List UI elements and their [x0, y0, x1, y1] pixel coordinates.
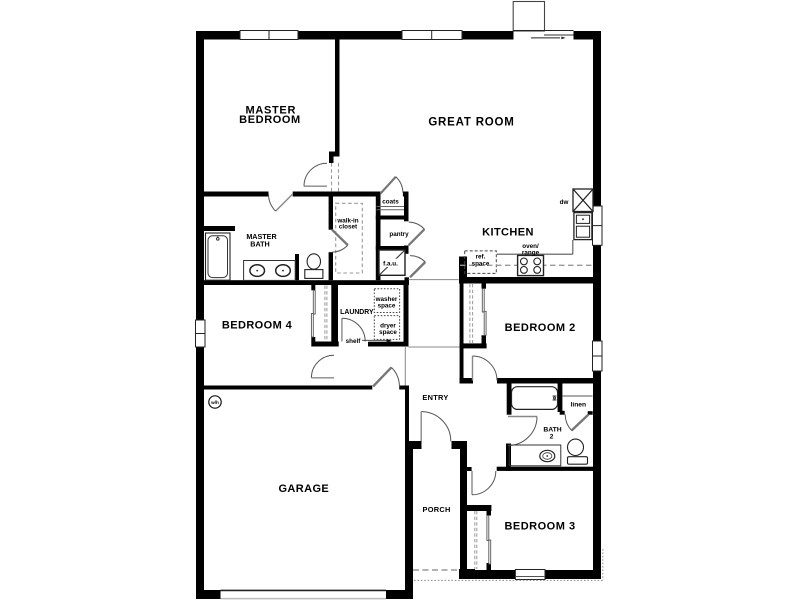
- svg-text:linen: linen: [570, 401, 586, 408]
- svg-text:BEDROOM: BEDROOM: [239, 114, 301, 126]
- svg-text:BEDROOM 4: BEDROOM 4: [222, 320, 293, 332]
- svg-text:pantry: pantry: [389, 231, 409, 238]
- svg-text:w/h: w/h: [210, 400, 219, 405]
- svg-text:ENTRY: ENTRY: [422, 393, 448, 402]
- svg-text:dw: dw: [560, 199, 569, 206]
- svg-text:space: space: [472, 261, 490, 268]
- svg-text:2: 2: [550, 434, 554, 441]
- svg-text:range: range: [522, 249, 540, 256]
- svg-text:f.a.u.: f.a.u.: [383, 261, 398, 268]
- svg-text:GREAT ROOM: GREAT ROOM: [428, 116, 514, 128]
- svg-text:BATH: BATH: [543, 426, 561, 433]
- svg-text:coats: coats: [382, 199, 399, 206]
- svg-text:shelf: shelf: [346, 338, 362, 345]
- svg-text:BEDROOM 2: BEDROOM 2: [505, 322, 576, 334]
- svg-text:closet: closet: [339, 224, 358, 231]
- svg-text:GARAGE: GARAGE: [278, 483, 329, 495]
- svg-text:PORCH: PORCH: [422, 505, 450, 514]
- svg-text:BATH: BATH: [250, 239, 269, 248]
- svg-text:space: space: [378, 303, 396, 310]
- svg-text:BEDROOM 3: BEDROOM 3: [504, 521, 575, 533]
- svg-text:KITCHEN: KITCHEN: [482, 227, 534, 239]
- svg-text:space: space: [379, 329, 397, 336]
- svg-text:LAUNDRY: LAUNDRY: [340, 309, 374, 316]
- svg-text:ref.: ref.: [476, 254, 486, 261]
